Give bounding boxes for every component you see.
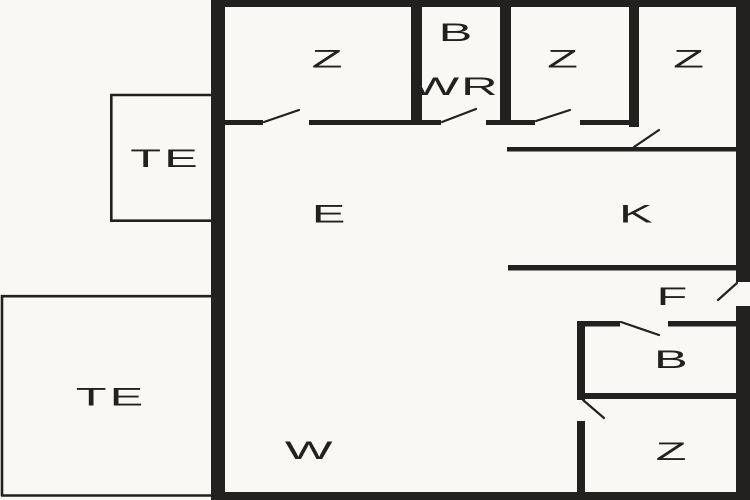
svg-text:TE: TE	[130, 145, 201, 173]
svg-text:WR: WR	[411, 73, 499, 101]
svg-text:W: W	[285, 437, 333, 465]
svg-text:B: B	[439, 19, 473, 47]
svg-text:B: B	[654, 346, 688, 374]
svg-text:K: K	[619, 200, 653, 228]
svg-text:Z: Z	[673, 45, 704, 73]
svg-text:Z: Z	[547, 46, 578, 74]
svg-text:E: E	[312, 200, 346, 228]
svg-text:Z: Z	[656, 438, 687, 466]
svg-text:F: F	[656, 283, 687, 311]
svg-text:Z: Z	[312, 46, 343, 74]
svg-text:TE: TE	[76, 384, 147, 412]
